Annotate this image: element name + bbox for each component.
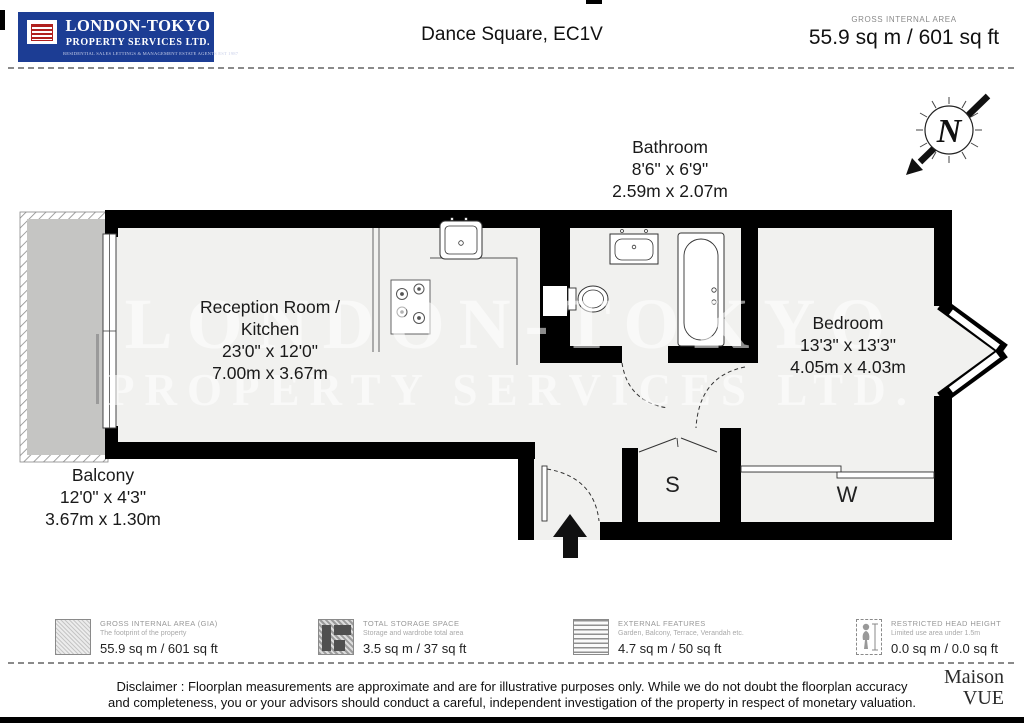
balcony-label: Balcony 12'0" x 4'3" 3.67m x 1.30m <box>8 464 198 530</box>
scan-artifact <box>586 0 602 4</box>
legend-subtitle: Garden, Balcony, Terrace, Verandah etc. <box>618 630 744 637</box>
disclaimer-line1: Disclaimer : Floorplan measurements are … <box>0 679 1024 695</box>
kitchen-sink <box>440 218 482 260</box>
disclaimer-line2: and completeness, you or your advisors s… <box>0 695 1024 711</box>
entrance-door-leaf <box>542 466 547 521</box>
legend-item-head-height: RESTRICTED HEAD HEIGHT Limited use area … <box>856 616 1001 656</box>
disclaimer: Disclaimer : Floorplan measurements are … <box>0 679 1024 710</box>
toilet <box>568 286 608 312</box>
person-icon <box>856 619 882 655</box>
external-features-swatch-icon <box>573 619 609 655</box>
legend-title: EXTERNAL FEATURES <box>618 619 744 628</box>
scan-artifact <box>0 717 1024 723</box>
brand-line1: Maison <box>944 667 1004 688</box>
legend-item-storage: TOTAL STORAGE SPACE Storage and wardrobe… <box>318 616 466 656</box>
legend-title: GROSS INTERNAL AREA (GIA) <box>100 619 218 628</box>
legend-subtitle: The footprint of the property <box>100 630 218 637</box>
legend-value: 3.5 sq m / 37 sq ft <box>363 641 466 656</box>
room-name: Reception Room / <box>130 296 410 318</box>
room-name: Bedroom <box>758 312 938 334</box>
boxed-duct <box>543 286 567 316</box>
wardrobe-label: W <box>812 482 882 508</box>
scan-artifact <box>0 10 5 30</box>
floorplan-page: LONDON-TOKYO PROPERTY SERVICES LTD. RESI… <box>0 0 1024 723</box>
legend-value: 0.0 sq m / 0.0 sq ft <box>891 641 1001 656</box>
room-dims-metric: 2.59m x 2.07m <box>560 180 780 202</box>
bathroom-label: Bathroom 8'6" x 6'9" 2.59m x 2.07m <box>560 136 780 202</box>
room-dims-metric: 3.67m x 1.30m <box>8 508 198 530</box>
legend-value: 4.7 sq m / 50 sq ft <box>618 641 744 656</box>
storage-label: S <box>645 472 700 498</box>
balcony-area <box>20 212 108 462</box>
room-dims-metric: 7.00m x 3.67m <box>130 362 410 384</box>
room-name: Kitchen <box>130 318 410 340</box>
legend-title: TOTAL STORAGE SPACE <box>363 619 466 628</box>
north-compass-icon: N <box>906 96 988 175</box>
storage-swatch-icon <box>318 619 354 655</box>
legend-value: 55.9 sq m / 601 sq ft <box>100 641 218 656</box>
legend-subtitle: Storage and wardrobe total area <box>363 630 466 637</box>
reception-label: Reception Room / Kitchen 23'0" x 12'0" 7… <box>130 296 410 384</box>
room-dims-metric: 4.05m x 4.03m <box>758 356 938 378</box>
gia-swatch-icon <box>55 619 91 655</box>
room-name: Balcony <box>8 464 198 486</box>
legend-item-external: EXTERNAL FEATURES Garden, Balcony, Terra… <box>573 616 744 656</box>
room-name: Bathroom <box>560 136 780 158</box>
brand-line2: VUE <box>944 688 1004 709</box>
legend-item-gia: GROSS INTERNAL AREA (GIA) The footprint … <box>55 616 218 656</box>
maison-vue-brand: Maison VUE <box>944 667 1004 709</box>
bedroom-label: Bedroom 13'3" x 13'3" 4.05m x 4.03m <box>758 312 938 378</box>
bathroom-sink <box>610 230 658 265</box>
legend-subtitle: Limited use area under 1.5m <box>891 630 1001 637</box>
room-dims-imperial: 8'6" x 6'9" <box>560 158 780 180</box>
bathtub <box>678 233 724 346</box>
legend-title: RESTRICTED HEAD HEIGHT <box>891 619 1001 628</box>
room-dims-imperial: 23'0" x 12'0" <box>130 340 410 362</box>
room-dims-imperial: 12'0" x 4'3" <box>8 486 198 508</box>
room-dims-imperial: 13'3" x 13'3" <box>758 334 938 356</box>
compass-north-letter: N <box>936 113 963 150</box>
